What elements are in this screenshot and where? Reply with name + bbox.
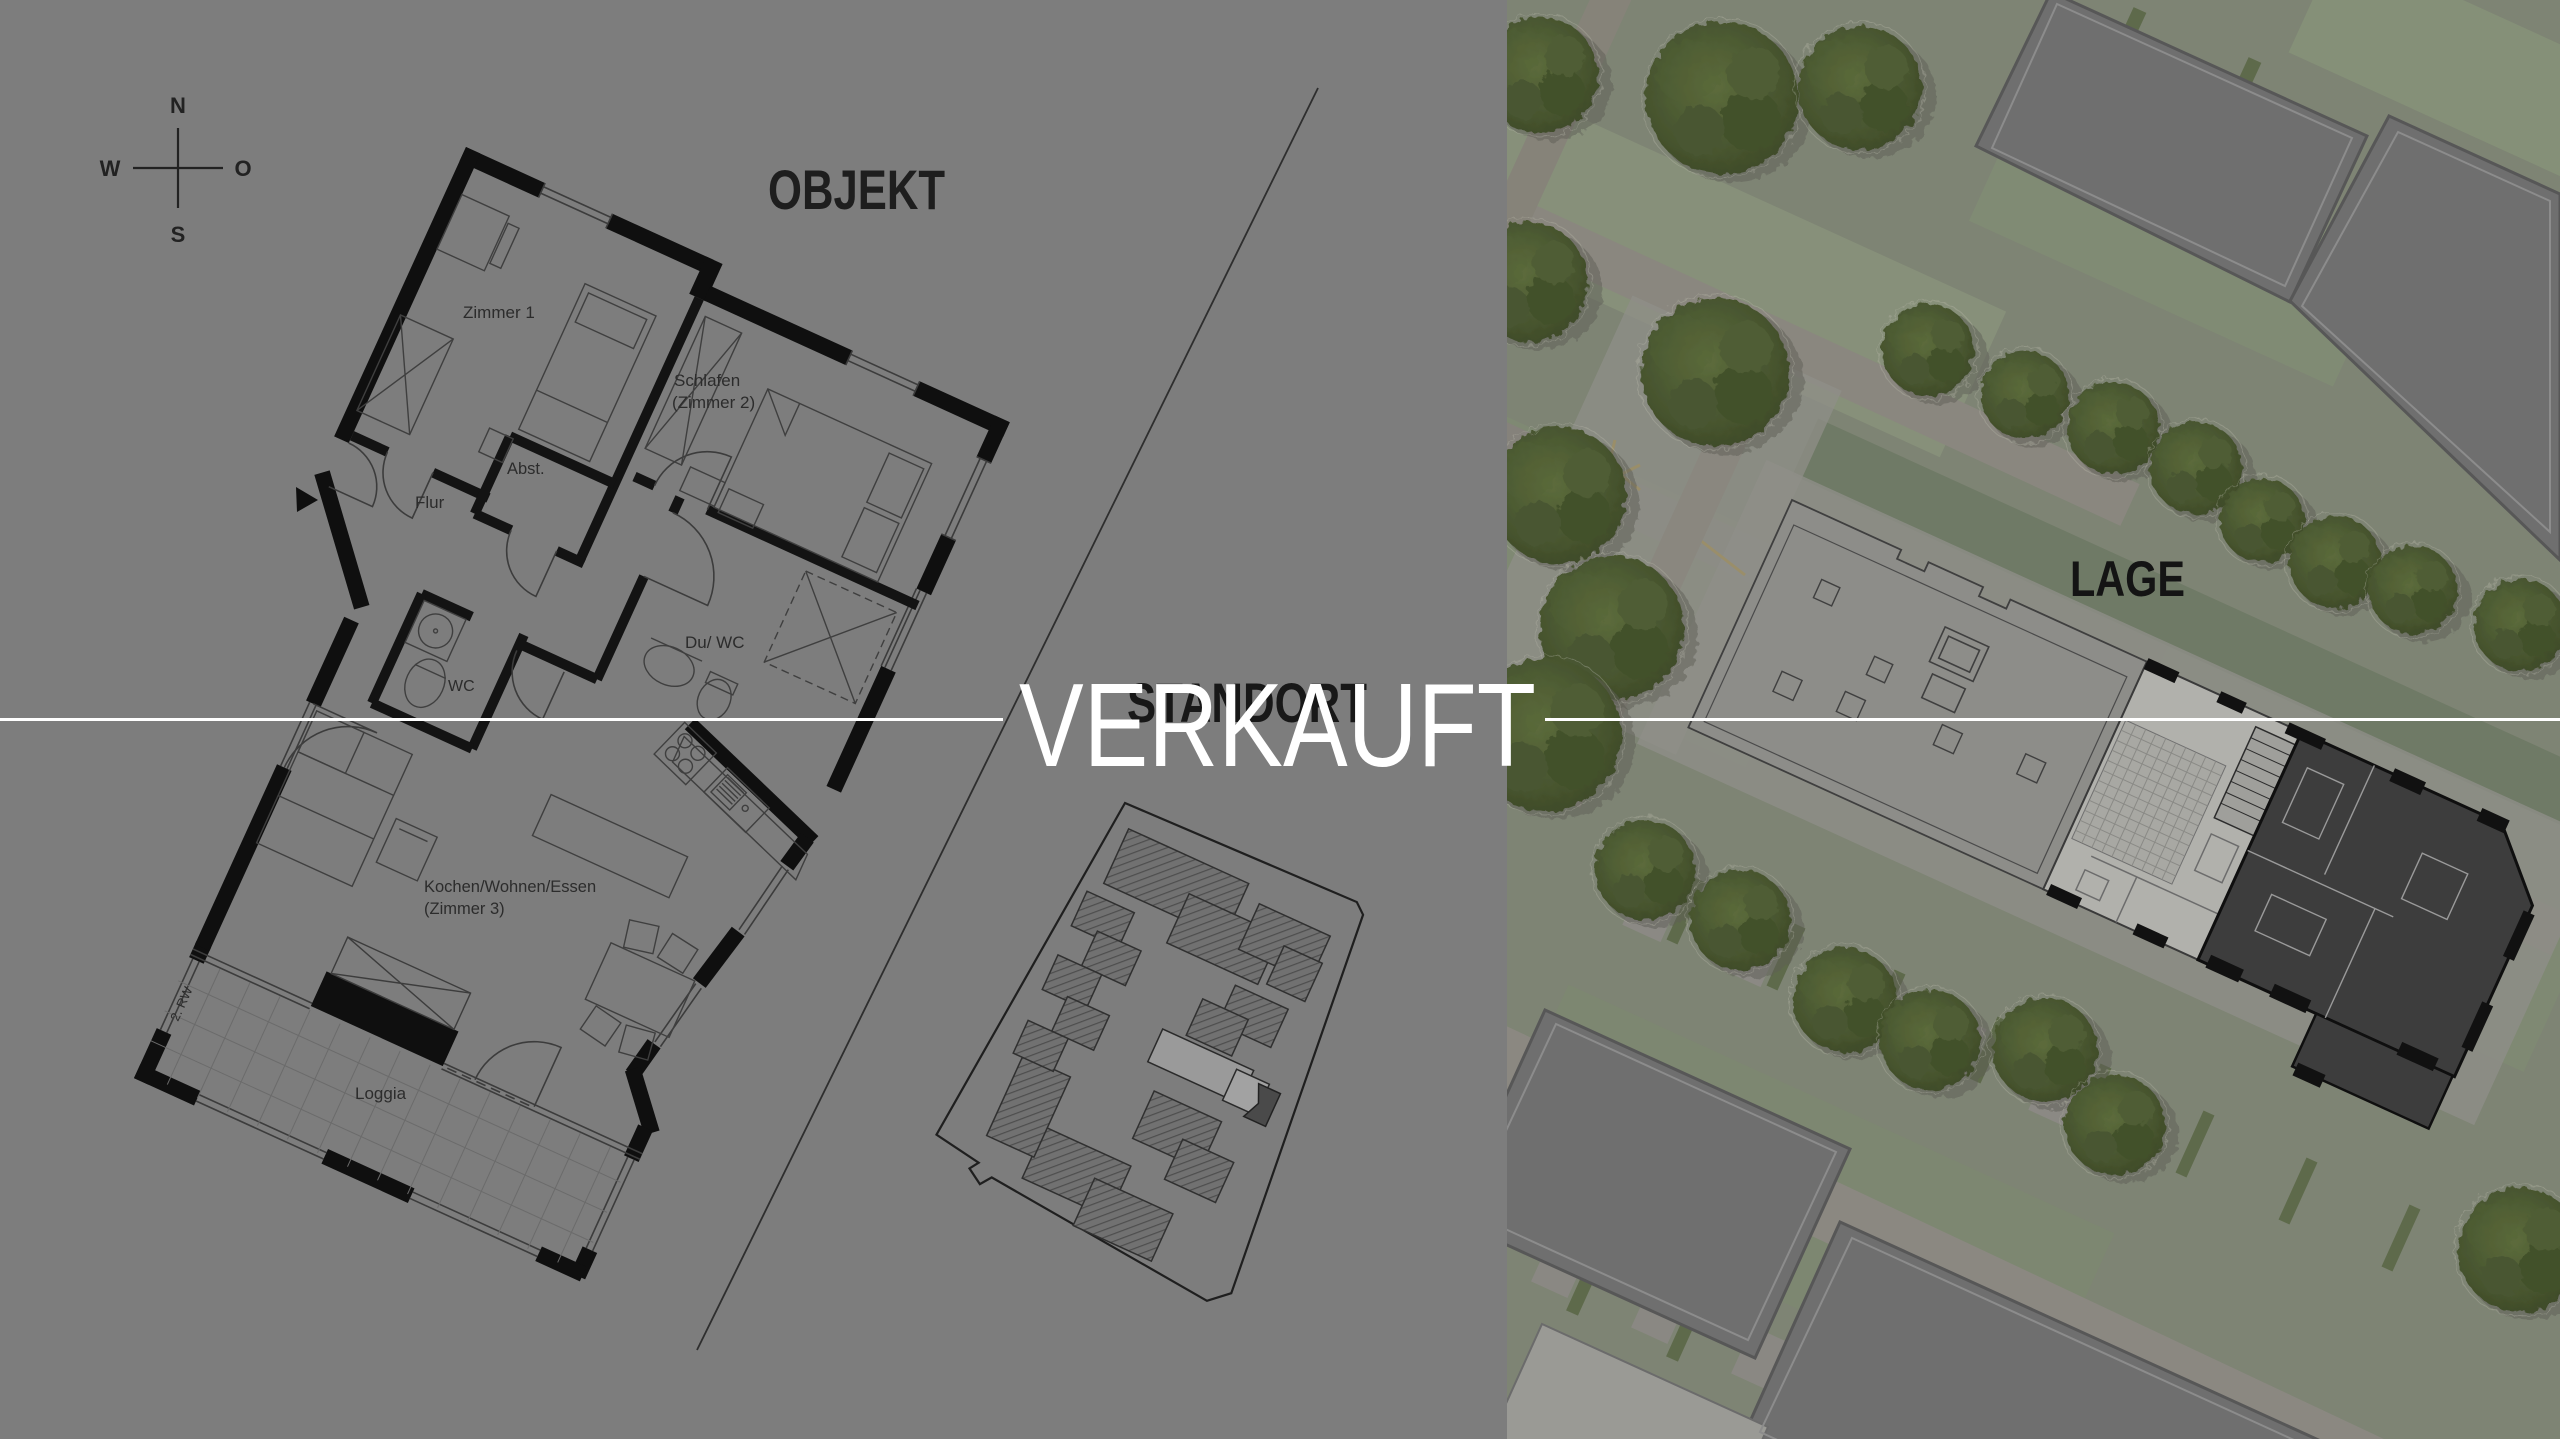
svg-text:W: W	[100, 156, 121, 181]
svg-text:Kochen/Wohnen/Essen: Kochen/Wohnen/Essen	[424, 878, 596, 896]
svg-text:(Zimmer 2): (Zimmer 2)	[672, 393, 755, 412]
svg-text:WC: WC	[448, 678, 475, 695]
svg-text:Flur: Flur	[415, 493, 445, 512]
svg-text:VERKAUFT: VERKAUFT	[1019, 659, 1536, 792]
svg-text:S: S	[171, 222, 186, 247]
svg-text:Zimmer 1: Zimmer 1	[463, 303, 535, 322]
svg-text:OBJEKT: OBJEKT	[768, 158, 945, 221]
svg-text:LAGE: LAGE	[2070, 551, 2185, 607]
svg-text:Loggia: Loggia	[355, 1084, 407, 1103]
svg-text:Schlafen: Schlafen	[674, 371, 740, 390]
svg-text:Abst.: Abst.	[507, 460, 545, 478]
svg-text:N: N	[170, 93, 186, 118]
svg-text:O: O	[234, 156, 251, 181]
svg-text:Du/ WC: Du/ WC	[685, 633, 745, 652]
svg-text:(Zimmer 3): (Zimmer 3)	[424, 900, 505, 918]
